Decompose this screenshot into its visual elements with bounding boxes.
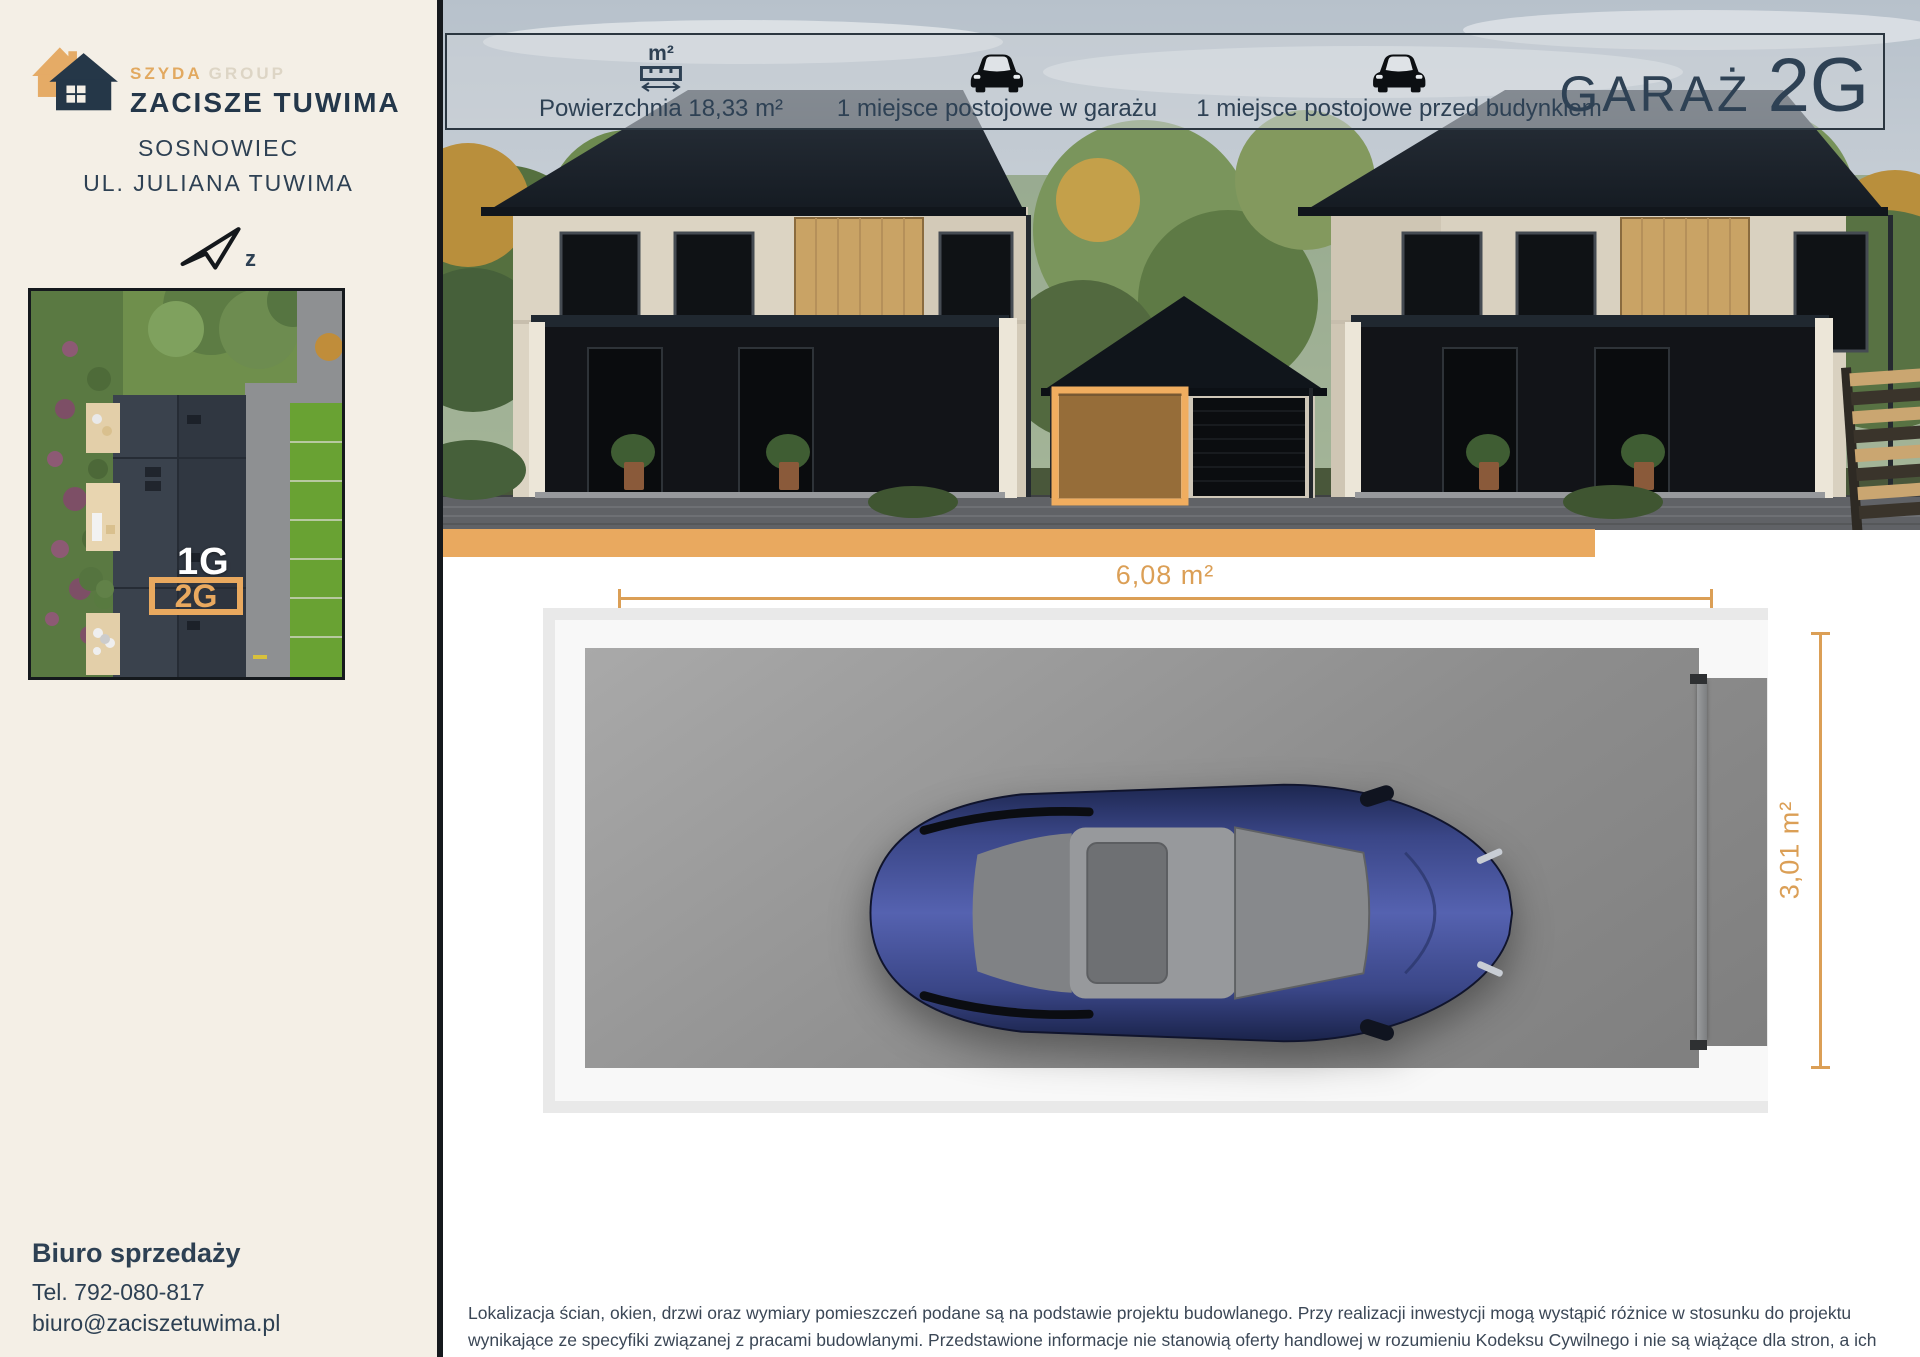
sales-office-phone[interactable]: Tel. 792-080-817 — [32, 1277, 280, 1308]
wall-corner-bottom-right — [1699, 1046, 1768, 1101]
brand-secondary: GROUP — [209, 64, 286, 83]
sales-office-email[interactable]: biuro@zaciszetuwima.pl — [32, 1308, 280, 1339]
double-house-icon — [30, 36, 122, 121]
location-street: UL. JULIANA TUWIMA — [0, 166, 437, 201]
ruler-m2-icon: m² — [539, 35, 783, 93]
garage-door — [1697, 680, 1707, 1040]
parking-outside-info: 1 miejsce postojowe przed budynkiem — [1196, 35, 1602, 123]
sidebar: SZYDAGROUP ZACISZE TUWIMA SOSNOWIEC UL. … — [0, 0, 437, 1357]
plan-height-dimension-line — [1819, 632, 1822, 1069]
sales-office-block: Biuro sprzedaży Tel. 792-080-817 biuro@z… — [32, 1238, 280, 1339]
wall-corner-top-right — [1699, 620, 1768, 678]
m2-icon-label: m² — [648, 43, 674, 64]
area-info: m² Powierzchnia 18,33 m² — [539, 35, 783, 123]
development-name: ZACISZE TUWIMA — [130, 87, 401, 119]
sales-office-title: Biuro sprzedaży — [32, 1238, 280, 1269]
plan-width-dimension-line — [618, 597, 1713, 600]
title-unit: 2G — [1768, 48, 1869, 124]
highlighted-garage-door — [1055, 390, 1185, 502]
parking-garage-info: 1 miejsce postojowe w garażu — [837, 35, 1157, 123]
parking-outside-text: 1 miejsce postojowe przed budynkiem — [1196, 95, 1602, 123]
brand-text: SZYDAGROUP ZACISZE TUWIMA — [130, 64, 401, 121]
plan-width-label: 6,08 m² — [1116, 560, 1215, 591]
plan-height-label: 3,01 m² — [1775, 801, 1806, 900]
garage-position-indicator — [443, 529, 1595, 557]
car-icon — [1196, 35, 1602, 93]
title-garaz: GARAŻ — [1559, 69, 1751, 119]
disclaimer-text: Lokalizacja ścian, okien, drzwi oraz wym… — [468, 1300, 1892, 1357]
parking-garage-text: 1 miejsce postojowe w garażu — [837, 95, 1157, 123]
garage-info-sheet: SZYDAGROUP ZACISZE TUWIMA SOSNOWIEC UL. … — [0, 0, 1920, 1357]
area-text: Powierzchnia 18,33 m² — [539, 95, 783, 123]
header-info-bar: m² Powierzchnia 18,33 m² — [445, 33, 1885, 130]
brand-logo: SZYDAGROUP ZACISZE TUWIMA — [30, 36, 401, 121]
page-title: GARAŻ 2G — [1559, 48, 1869, 124]
car-icon — [837, 35, 1157, 93]
brand-primary: SZYDA — [130, 64, 203, 83]
location-block: SOSNOWIEC UL. JULIANA TUWIMA — [0, 131, 437, 200]
siteplan-image: 1G 2G — [28, 288, 345, 680]
siteplan-unit-2g-badge: 2G — [149, 577, 243, 615]
location-city: SOSNOWIEC — [0, 131, 437, 166]
north-label: z — [245, 246, 256, 272]
door-hinge-top — [1690, 674, 1707, 684]
car-top-view — [772, 738, 1562, 1088]
door-hinge-bottom — [1690, 1040, 1707, 1050]
north-indicator: z — [178, 222, 256, 272]
